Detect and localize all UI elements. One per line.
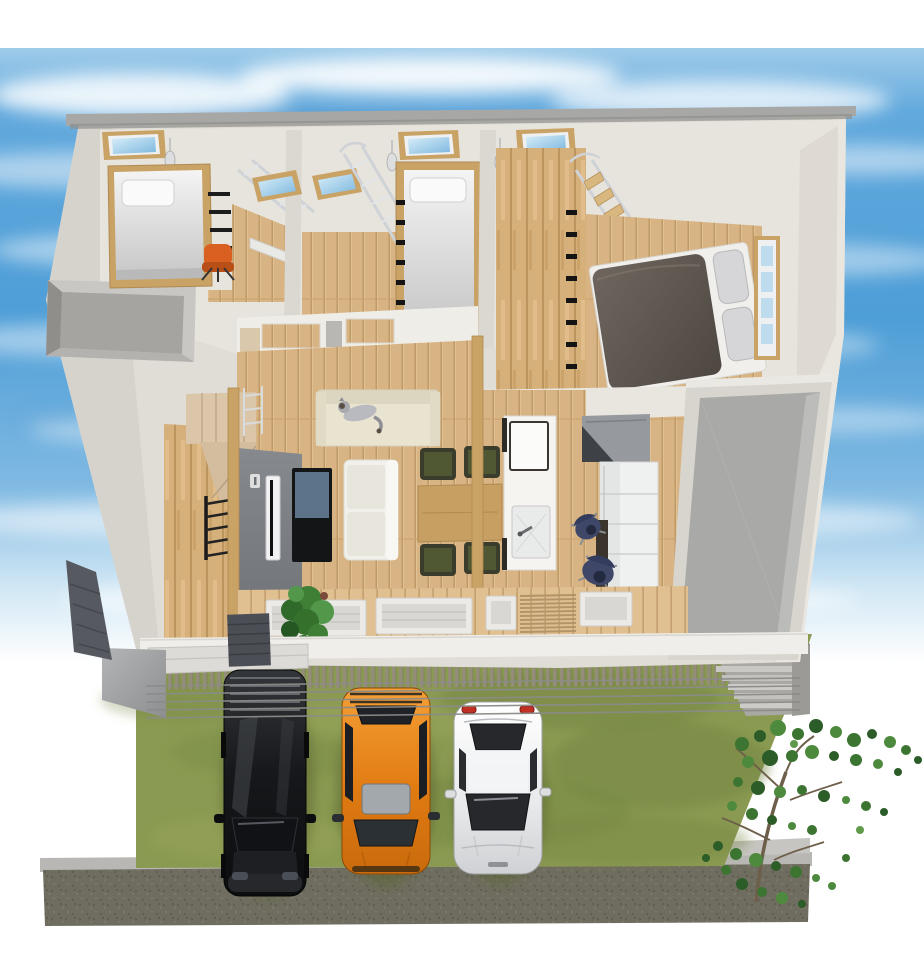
wood-plank-wall xyxy=(496,148,586,392)
tv-edge-on xyxy=(266,476,280,560)
loft-opening xyxy=(262,324,320,348)
mattress-side xyxy=(116,268,204,280)
loft-bed xyxy=(108,164,212,288)
side-mirror xyxy=(428,812,440,820)
render-canvas xyxy=(0,0,924,968)
side-mirror xyxy=(445,790,456,798)
suv-orange xyxy=(332,688,440,887)
skylight xyxy=(398,130,460,160)
sedan-white xyxy=(445,702,551,884)
sliding-door-sill xyxy=(376,598,472,634)
sliding-door-sill xyxy=(580,592,632,626)
sofa-white xyxy=(344,460,398,560)
windshield xyxy=(354,820,418,846)
step xyxy=(716,666,802,672)
void-wall xyxy=(46,280,62,356)
side-mirror xyxy=(332,814,344,822)
stairwell-void xyxy=(46,280,196,362)
cutting-board xyxy=(510,422,548,470)
side-mirror xyxy=(305,814,316,823)
appliance-block xyxy=(582,414,650,462)
taillight xyxy=(462,706,476,713)
double-bed xyxy=(589,242,767,395)
divider-wall xyxy=(478,130,496,348)
dining-chair xyxy=(420,448,456,480)
loft-opening xyxy=(346,319,394,343)
rear-window xyxy=(470,724,526,750)
pillow xyxy=(122,180,174,206)
loft-divider xyxy=(326,321,342,347)
dining-chair xyxy=(420,544,456,576)
display-black xyxy=(292,468,332,562)
void-floor xyxy=(60,292,184,354)
moonroof xyxy=(362,784,410,814)
bedroom-window xyxy=(754,236,780,360)
pillow xyxy=(410,178,466,202)
wall-handle xyxy=(250,474,260,488)
minivan-black xyxy=(214,670,316,898)
sliding-door-sill xyxy=(486,596,516,630)
duvet xyxy=(591,253,723,391)
taillight xyxy=(520,706,534,713)
side-mirror xyxy=(214,814,225,823)
vehicles xyxy=(214,670,551,898)
retaining-wall-body xyxy=(43,864,810,926)
porch-roof-dark xyxy=(227,613,271,666)
side-mirror xyxy=(540,788,551,796)
sofa-cream xyxy=(316,390,440,446)
house xyxy=(46,106,856,718)
sink xyxy=(512,506,550,558)
skylight xyxy=(102,130,166,160)
divider-wall xyxy=(284,130,302,344)
